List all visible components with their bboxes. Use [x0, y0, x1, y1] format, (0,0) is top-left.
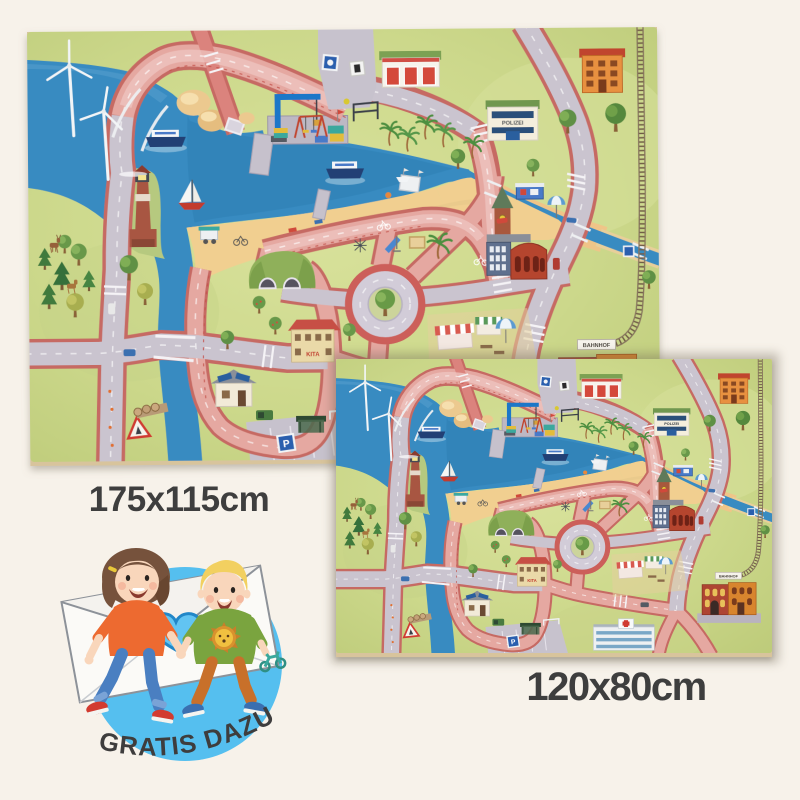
- svg-text:120x80cm: 120x80cm: [526, 665, 705, 709]
- svg-text:175x115cm: 175x115cm: [89, 480, 269, 519]
